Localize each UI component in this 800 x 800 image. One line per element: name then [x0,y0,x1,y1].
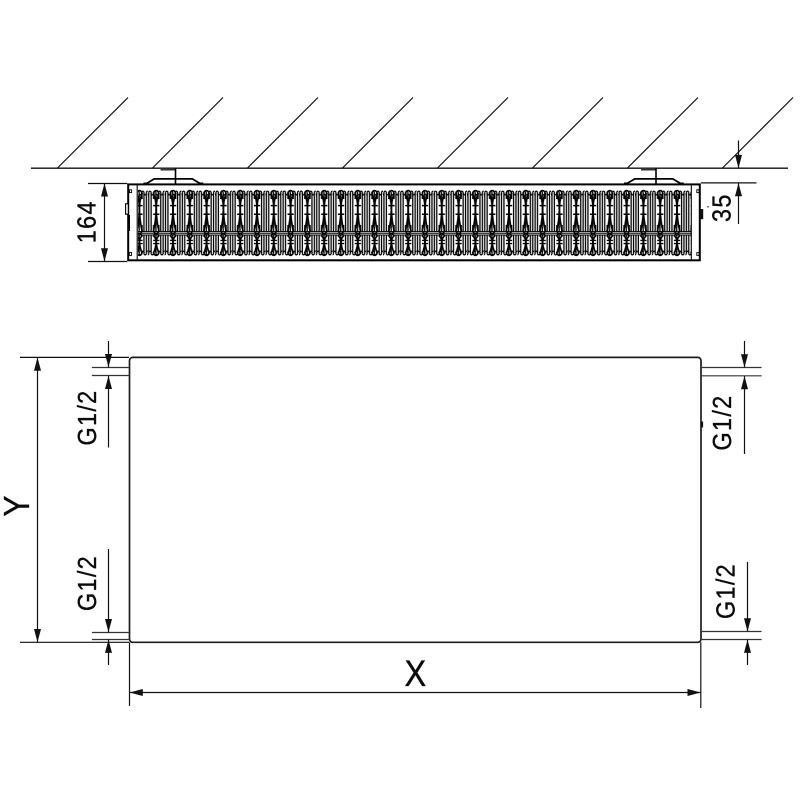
svg-text:G1/2: G1/2 [709,394,737,450]
svg-text:G1/2: G1/2 [74,389,102,445]
svg-text:G1/2: G1/2 [74,555,102,611]
svg-text:35: 35 [708,193,736,222]
svg-text:Y: Y [0,496,37,517]
svg-text:X: X [405,653,427,694]
svg-text:164: 164 [74,200,102,243]
svg-text:G1/2: G1/2 [713,563,741,619]
